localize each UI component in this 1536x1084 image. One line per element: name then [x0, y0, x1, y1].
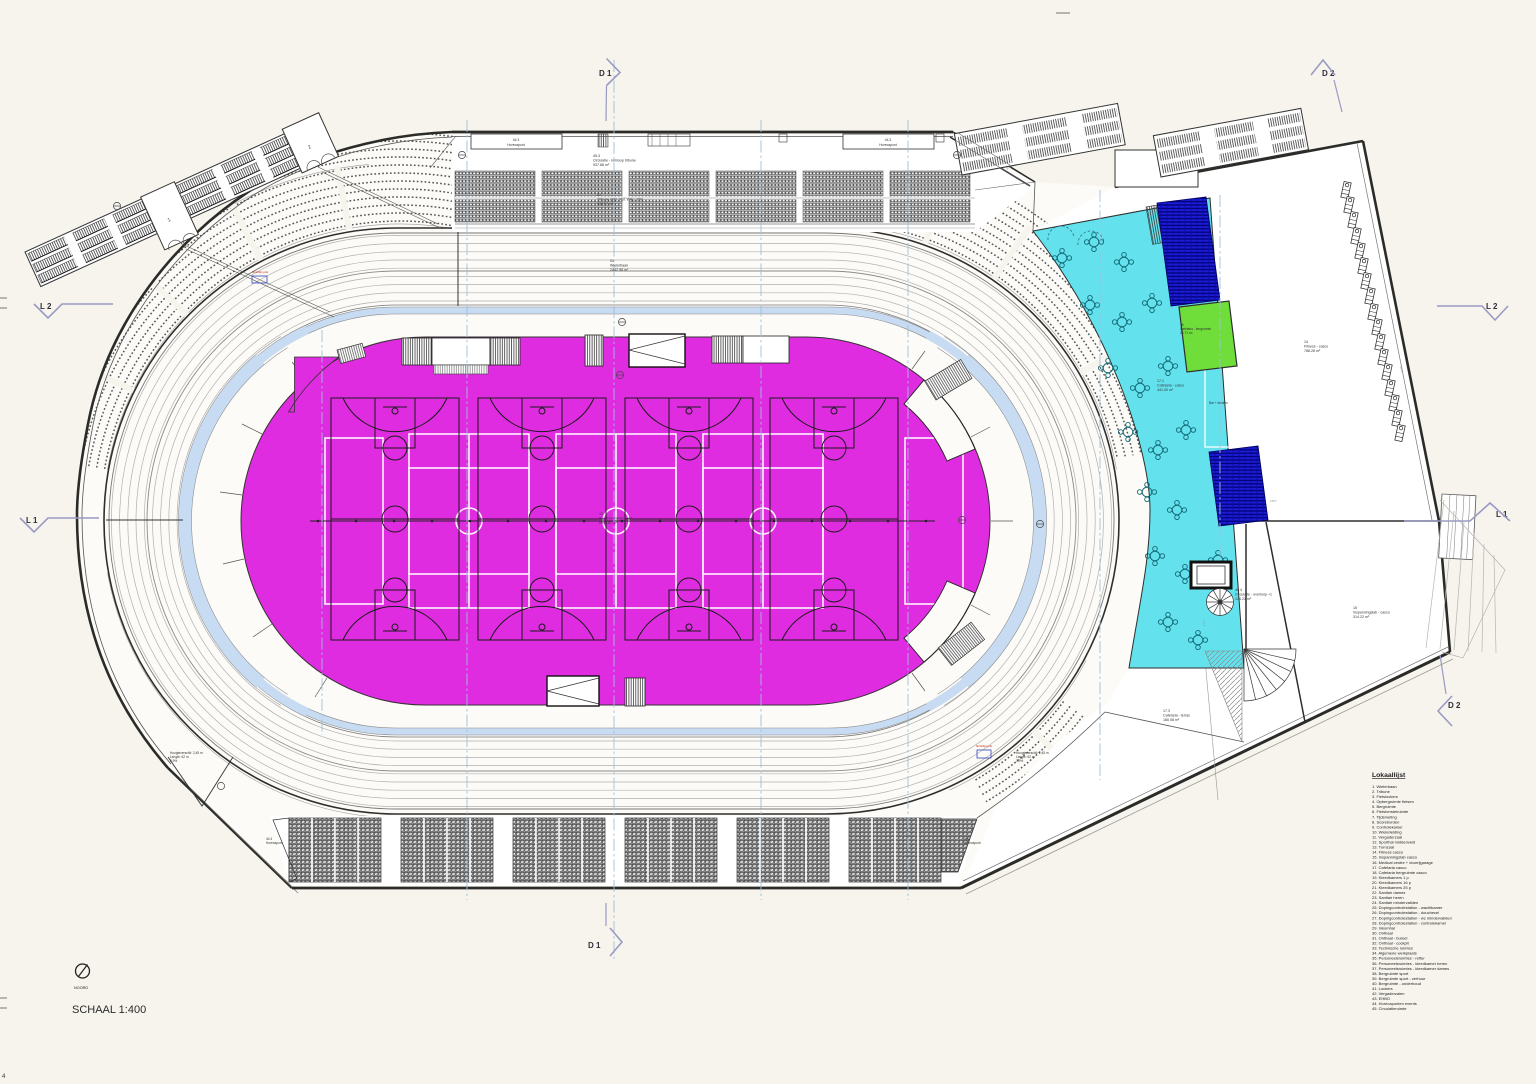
svg-text:NOORD: NOORD: [74, 986, 88, 990]
svg-text:44.3: 44.3: [885, 138, 892, 142]
svg-text:L 1: L 1: [26, 516, 38, 525]
svg-text:Cafetaria - terras: Cafetaria - terras: [1163, 714, 1190, 718]
svg-text:Bar + keuken: Bar + keuken: [1209, 401, 1228, 405]
svg-text:Sporthal middenveld: Sporthal middenveld: [599, 517, 632, 521]
svg-text:180.08 m²: 180.08 m²: [1163, 718, 1180, 722]
svg-text:45. Circulatieruimte: 45. Circulatieruimte: [1372, 1006, 1407, 1011]
svg-text:788.26 m²: 788.26 m²: [1304, 349, 1321, 353]
svg-text:3,9%: 3,9%: [170, 759, 177, 763]
svg-text:15: 15: [1353, 606, 1357, 610]
svg-text:29.71 m²: 29.71 m²: [1180, 331, 1193, 335]
svg-text:17.3: 17.3: [1163, 709, 1170, 713]
svg-text:12: 12: [599, 512, 603, 516]
svg-text:Inspanningslab - casco: Inspanningslab - casco: [1353, 611, 1390, 615]
svg-text:D 2: D 2: [1448, 701, 1461, 710]
svg-text:1857: 1857: [1270, 499, 1277, 503]
svg-text:314.22 m²: 314.22 m²: [1353, 615, 1370, 619]
svg-text:Wielerbaan: Wielerbaan: [610, 264, 628, 268]
svg-text:45.3: 45.3: [593, 154, 600, 158]
svg-text:44.3: 44.3: [513, 138, 520, 142]
svg-text:finishlijn pist: finishlijn pist: [976, 744, 992, 748]
svg-text:Circulatie - lomloop tribune: Circulatie - lomloop tribune: [593, 159, 636, 163]
svg-text:02: 02: [597, 193, 601, 197]
svg-text:124.22 m²: 124.22 m²: [1235, 597, 1252, 601]
svg-text:01: 01: [610, 259, 614, 263]
svg-text:441.00 m²: 441.00 m²: [1157, 388, 1174, 392]
svg-text:2113: 2113: [1202, 620, 1207, 627]
svg-text:Horecapunt: Horecapunt: [507, 143, 525, 147]
svg-text:Circulatie - overloop +1: Circulatie - overloop +1: [1235, 593, 1272, 597]
svg-text:14: 14: [1304, 340, 1308, 344]
svg-text:D 1: D 1: [588, 941, 601, 950]
svg-text:Horecapunt: Horecapunt: [964, 841, 981, 845]
svg-text:2442.98 m²: 2442.98 m²: [610, 268, 629, 272]
svg-text:L 2: L 2: [40, 302, 52, 311]
svg-text:Tribune (920 zitpl. WBC 250): Tribune (920 zitpl. WBC 250): [597, 198, 643, 202]
svg-text:2556.67 m²: 2556.67 m²: [599, 521, 618, 525]
svg-text:939.97 m²: 939.97 m²: [597, 202, 614, 206]
svg-text:Horecapunt: Horecapunt: [266, 841, 283, 845]
svg-text:D 1: D 1: [599, 69, 612, 78]
svg-text:Fitness - casco: Fitness - casco: [1304, 345, 1328, 349]
svg-text:Cafetaria - casco: Cafetaria - casco: [1157, 384, 1184, 388]
svg-text:937.88 m²: 937.88 m²: [593, 163, 610, 167]
svg-text:finishlijn pist: finishlijn pist: [252, 270, 268, 274]
svg-text:Lokaallijst: Lokaallijst: [1372, 772, 1406, 779]
svg-text:17.1: 17.1: [1157, 379, 1164, 383]
svg-text:SCHAAL 1:400: SCHAAL 1:400: [72, 1004, 146, 1016]
svg-text:3,9%: 3,9%: [1016, 759, 1023, 763]
svg-text:Horecapunt: Horecapunt: [879, 143, 897, 147]
svg-text:L 2: L 2: [1486, 302, 1498, 311]
svg-text:45.4: 45.4: [1235, 588, 1242, 592]
